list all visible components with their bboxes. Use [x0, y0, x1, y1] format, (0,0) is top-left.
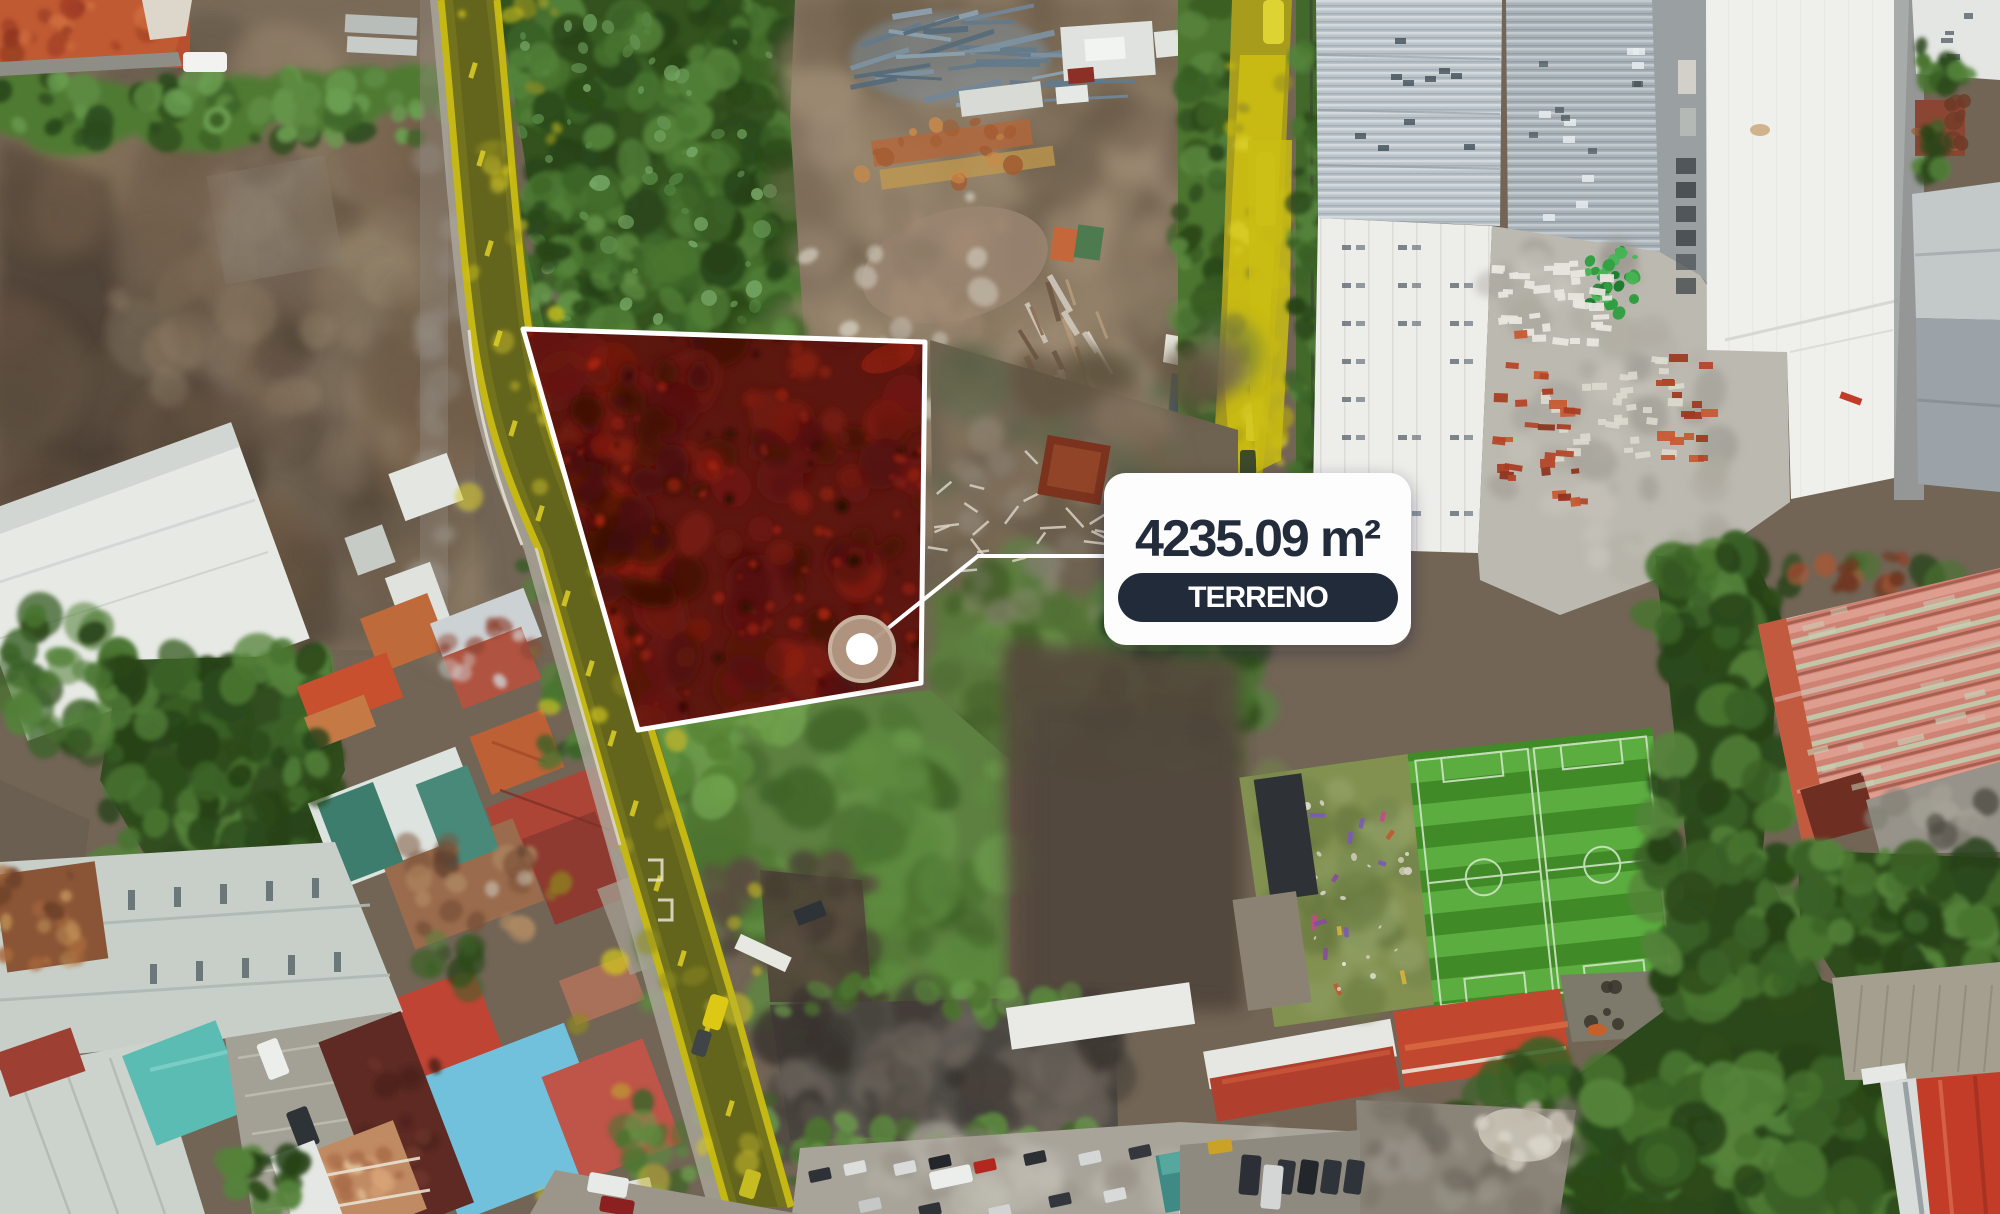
svg-text:TERRENO: TERRENO [1188, 581, 1328, 614]
svg-text:4235.09 m²: 4235.09 m² [1135, 510, 1381, 568]
